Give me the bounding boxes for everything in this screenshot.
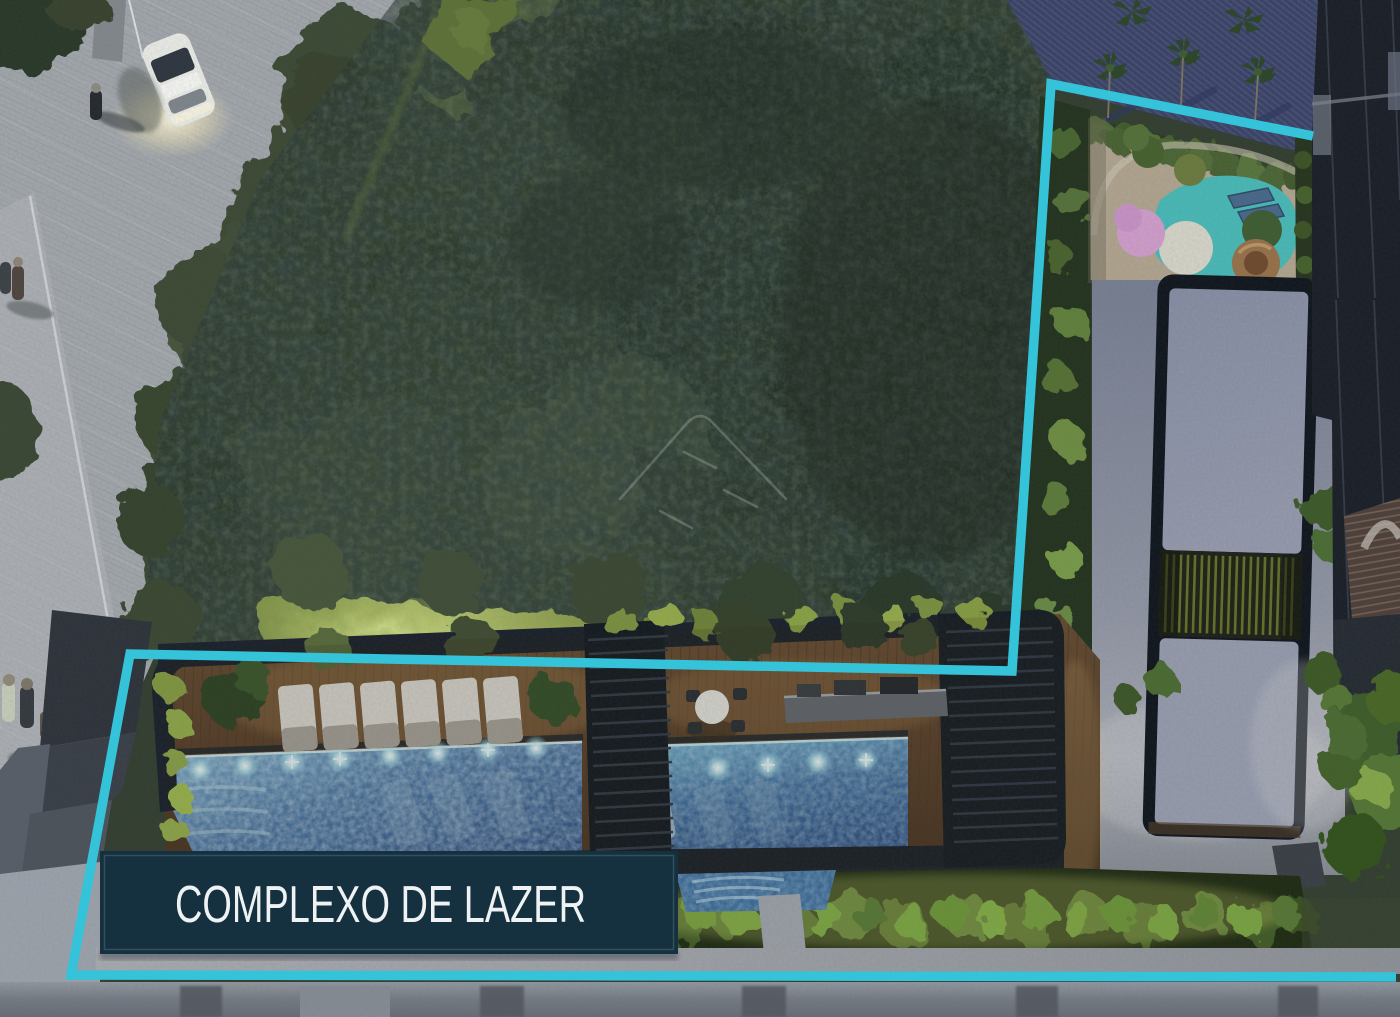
svg-text:COMPLEXO DE LAZER: COMPLEXO DE LAZER (175, 876, 586, 934)
